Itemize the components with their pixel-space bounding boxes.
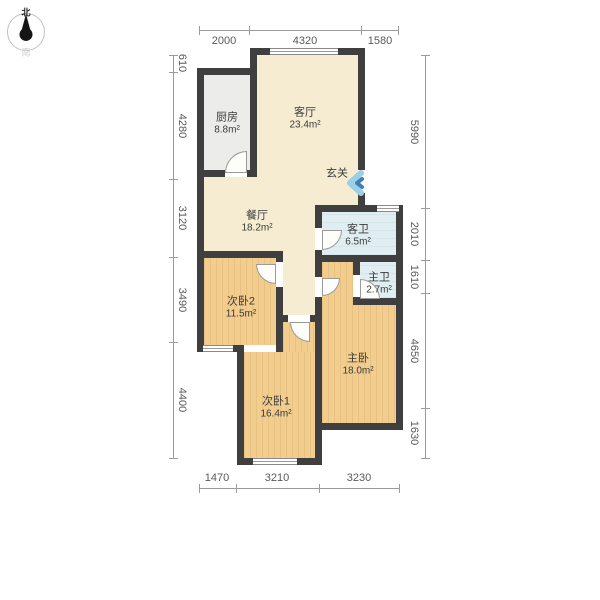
dimension-value: 1580 [368,35,392,47]
dimension-value: 4650 [408,339,420,363]
dimension-tick [236,484,237,493]
dimension-value: 610 [176,54,188,72]
dimension-line [425,55,426,458]
wall-segment [250,48,257,177]
dimension-value: 4400 [176,388,188,412]
dimension-value: 3230 [347,472,371,484]
dimension-tick [421,208,430,209]
dimension-tick [421,458,430,459]
wall-segment [237,352,244,465]
wall-segment [315,205,322,228]
room-label-entry: 玄关 [326,168,348,181]
dimension-tick [169,179,178,180]
dimension-line [199,488,399,489]
wall-segment [315,423,403,430]
wall-segment [197,68,204,352]
dimension-tick [421,293,430,294]
dimension-tick [249,26,250,35]
dimension-tick [199,26,200,35]
wall-segment [276,251,283,262]
wall-segment [197,251,283,258]
dimension-tick [169,257,178,258]
dimension-tick [199,484,200,493]
dimension-value: 4280 [176,114,188,138]
dimension-tick [319,484,320,493]
compass-needle-icon [4,8,48,56]
compass: 北 南 [0,0,52,60]
dimension-value: 3120 [176,206,188,230]
room-label-living: 客厅 23.4m² [289,107,320,132]
hallway-floor [283,205,315,315]
room-label-master-bed: 主卧 18.0m² [342,353,373,378]
wall-segment [353,298,403,305]
dimension-value: 1470 [205,472,229,484]
dimension-tick [421,260,430,261]
wall-segment [353,262,360,275]
dimension-tick [399,484,400,493]
dimension-tick [421,55,430,56]
dimension-value: 3490 [176,288,188,312]
room-label-dining: 餐厅 18.2m² [241,210,272,235]
room-label-kitchen: 厨房 8.8m² [214,112,240,137]
wall-segment [310,315,315,322]
window [270,48,338,55]
dimension-tick [169,342,178,343]
wall-segment [197,170,225,177]
dimension-value: 3210 [265,472,289,484]
wall-segment [315,262,322,277]
dimension-tick [421,408,430,409]
dimension-line [199,30,398,31]
dimension-value: 5990 [408,120,420,144]
wall-segment [247,170,257,177]
wall-segment [197,68,257,75]
dimension-value: 4320 [293,35,317,47]
window [203,345,233,352]
wall-segment [315,297,322,423]
window [377,205,399,212]
room-label-bedroom2: 次卧2 11.5m² [226,296,256,321]
dimension-value: 2010 [408,222,420,246]
room-label-guest-bath: 客卫 6.5m² [345,224,371,249]
dimension-tick [361,26,362,35]
wall-segment [315,255,403,262]
wall-segment [276,287,283,352]
wall-segment [358,48,365,170]
wall-segment [396,205,403,430]
dimension-value: 1610 [408,265,420,289]
room-label-bedroom1: 次卧1 16.4m² [260,396,291,421]
wall-segment [283,315,288,322]
window [253,458,297,465]
floor-plan-image: 北 南 [0,0,600,600]
room-label-master-bath: 主卫 2.7m² [366,272,392,297]
dimension-value: 1630 [408,421,420,445]
dimension-value: 2000 [212,35,236,47]
dimension-tick [169,458,178,459]
dimension-tick [398,26,399,35]
